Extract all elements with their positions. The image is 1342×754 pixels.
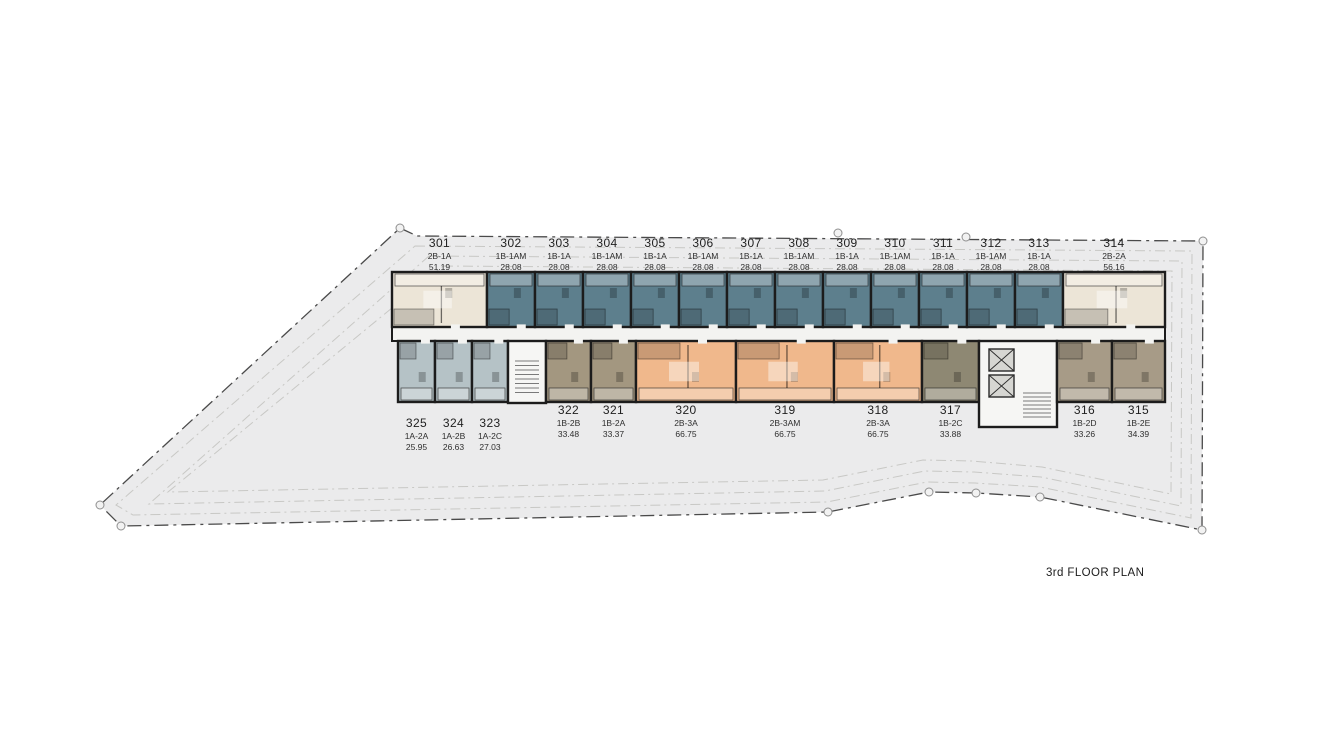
bath (1065, 309, 1108, 325)
door-gap (1091, 339, 1100, 344)
kitchen (1097, 291, 1128, 309)
door-gap (1145, 339, 1154, 344)
bath (638, 343, 680, 359)
bath (969, 309, 989, 325)
unit-325 (398, 339, 435, 402)
bath (394, 309, 434, 325)
door-gap (1045, 324, 1054, 329)
balcony (922, 274, 964, 286)
bath (738, 343, 779, 359)
closet (994, 288, 1001, 298)
door-gap (797, 339, 806, 344)
bath (1114, 343, 1136, 359)
closet (562, 288, 569, 298)
unit-323 (472, 339, 508, 402)
door-gap (757, 324, 766, 329)
bath (1059, 343, 1082, 359)
balcony (730, 274, 772, 286)
stairwell (508, 341, 546, 403)
unit-321 (591, 339, 636, 402)
bath (921, 309, 941, 325)
door-gap (698, 339, 707, 344)
bath (593, 343, 612, 359)
door-gap (661, 324, 670, 329)
bath (777, 309, 797, 325)
balcony (1018, 274, 1060, 286)
bath (489, 309, 509, 325)
kitchen (669, 362, 699, 382)
door-gap (458, 339, 467, 344)
balcony (682, 274, 724, 286)
balcony (1115, 388, 1162, 400)
door-gap (853, 324, 862, 329)
bath (1017, 309, 1037, 325)
closet (1088, 372, 1095, 382)
unit-303 (535, 272, 583, 329)
balcony (490, 274, 532, 286)
door-gap (997, 324, 1006, 329)
balcony (438, 388, 469, 400)
bath (825, 309, 845, 325)
unit-316 (1057, 339, 1112, 402)
balcony (634, 274, 676, 286)
balcony (1066, 274, 1162, 286)
closet (419, 372, 426, 382)
balcony (639, 388, 733, 400)
closet (616, 372, 623, 382)
unit-315 (1112, 339, 1165, 402)
unit-310 (871, 272, 919, 329)
unit-305 (631, 272, 679, 329)
closet (610, 288, 617, 298)
door-gap (574, 339, 583, 344)
site-plan-svg (0, 0, 1342, 754)
unit-304 (583, 272, 631, 329)
balcony (778, 274, 820, 286)
unit-301 (392, 272, 487, 329)
bath (633, 309, 653, 325)
closet (456, 372, 463, 382)
door-gap (517, 324, 526, 329)
unit-314 (1063, 272, 1165, 329)
closet (658, 288, 665, 298)
door-gap (565, 324, 574, 329)
kitchen (768, 362, 797, 382)
door-gap (1126, 324, 1135, 329)
bath (924, 343, 948, 359)
door-gap (901, 324, 910, 329)
closet (514, 288, 521, 298)
balcony (837, 388, 919, 400)
unit-312 (967, 272, 1015, 329)
door-gap (949, 324, 958, 329)
unit-320 (636, 339, 736, 402)
door-gap (709, 324, 718, 329)
bath (873, 309, 893, 325)
unit-302 (487, 272, 535, 329)
door-gap (889, 339, 898, 344)
unit-322 (546, 339, 591, 402)
closet (946, 288, 953, 298)
bath (836, 343, 873, 359)
bath (400, 343, 416, 359)
bath (537, 309, 557, 325)
closet (1142, 372, 1149, 382)
balcony (549, 388, 588, 400)
door-gap (957, 339, 966, 344)
balcony (739, 388, 831, 400)
elevator-core (979, 341, 1057, 427)
closet (754, 288, 761, 298)
door-gap (451, 324, 460, 329)
balcony (401, 388, 432, 400)
unit-318 (834, 339, 922, 402)
closet (954, 372, 961, 382)
bath (474, 343, 490, 359)
unit-317 (922, 339, 979, 402)
kitchen (863, 362, 889, 382)
plan-title: 3rd FLOOR PLAN (1046, 567, 1144, 579)
bath (585, 309, 605, 325)
closet (802, 288, 809, 298)
floor-plan-canvas: 3012B-1A51.193021B-1AM28.083031B-1A28.08… (0, 0, 1342, 754)
balcony (1060, 388, 1109, 400)
bath (437, 343, 453, 359)
closet (898, 288, 905, 298)
unit-313 (1015, 272, 1063, 329)
unit-309 (823, 272, 871, 329)
balcony (395, 274, 484, 286)
unit-306 (679, 272, 727, 329)
kitchen (423, 291, 452, 309)
unit-319 (736, 339, 834, 402)
balcony (970, 274, 1012, 286)
closet (1042, 288, 1049, 298)
bath (548, 343, 567, 359)
door-gap (805, 324, 814, 329)
balcony (874, 274, 916, 286)
door-gap (613, 324, 622, 329)
door-gap (494, 339, 503, 344)
balcony (594, 388, 633, 400)
door-gap (421, 339, 430, 344)
bath (729, 309, 749, 325)
balcony (475, 388, 505, 400)
balcony (586, 274, 628, 286)
unit-307 (727, 272, 775, 329)
door-gap (619, 339, 628, 344)
closet (492, 372, 499, 382)
balcony (826, 274, 868, 286)
closet (850, 288, 857, 298)
closet (571, 372, 578, 382)
bath (681, 309, 701, 325)
closet (706, 288, 713, 298)
balcony (925, 388, 976, 400)
unit-308 (775, 272, 823, 329)
balcony (538, 274, 580, 286)
unit-311 (919, 272, 967, 329)
unit-324 (435, 339, 472, 402)
